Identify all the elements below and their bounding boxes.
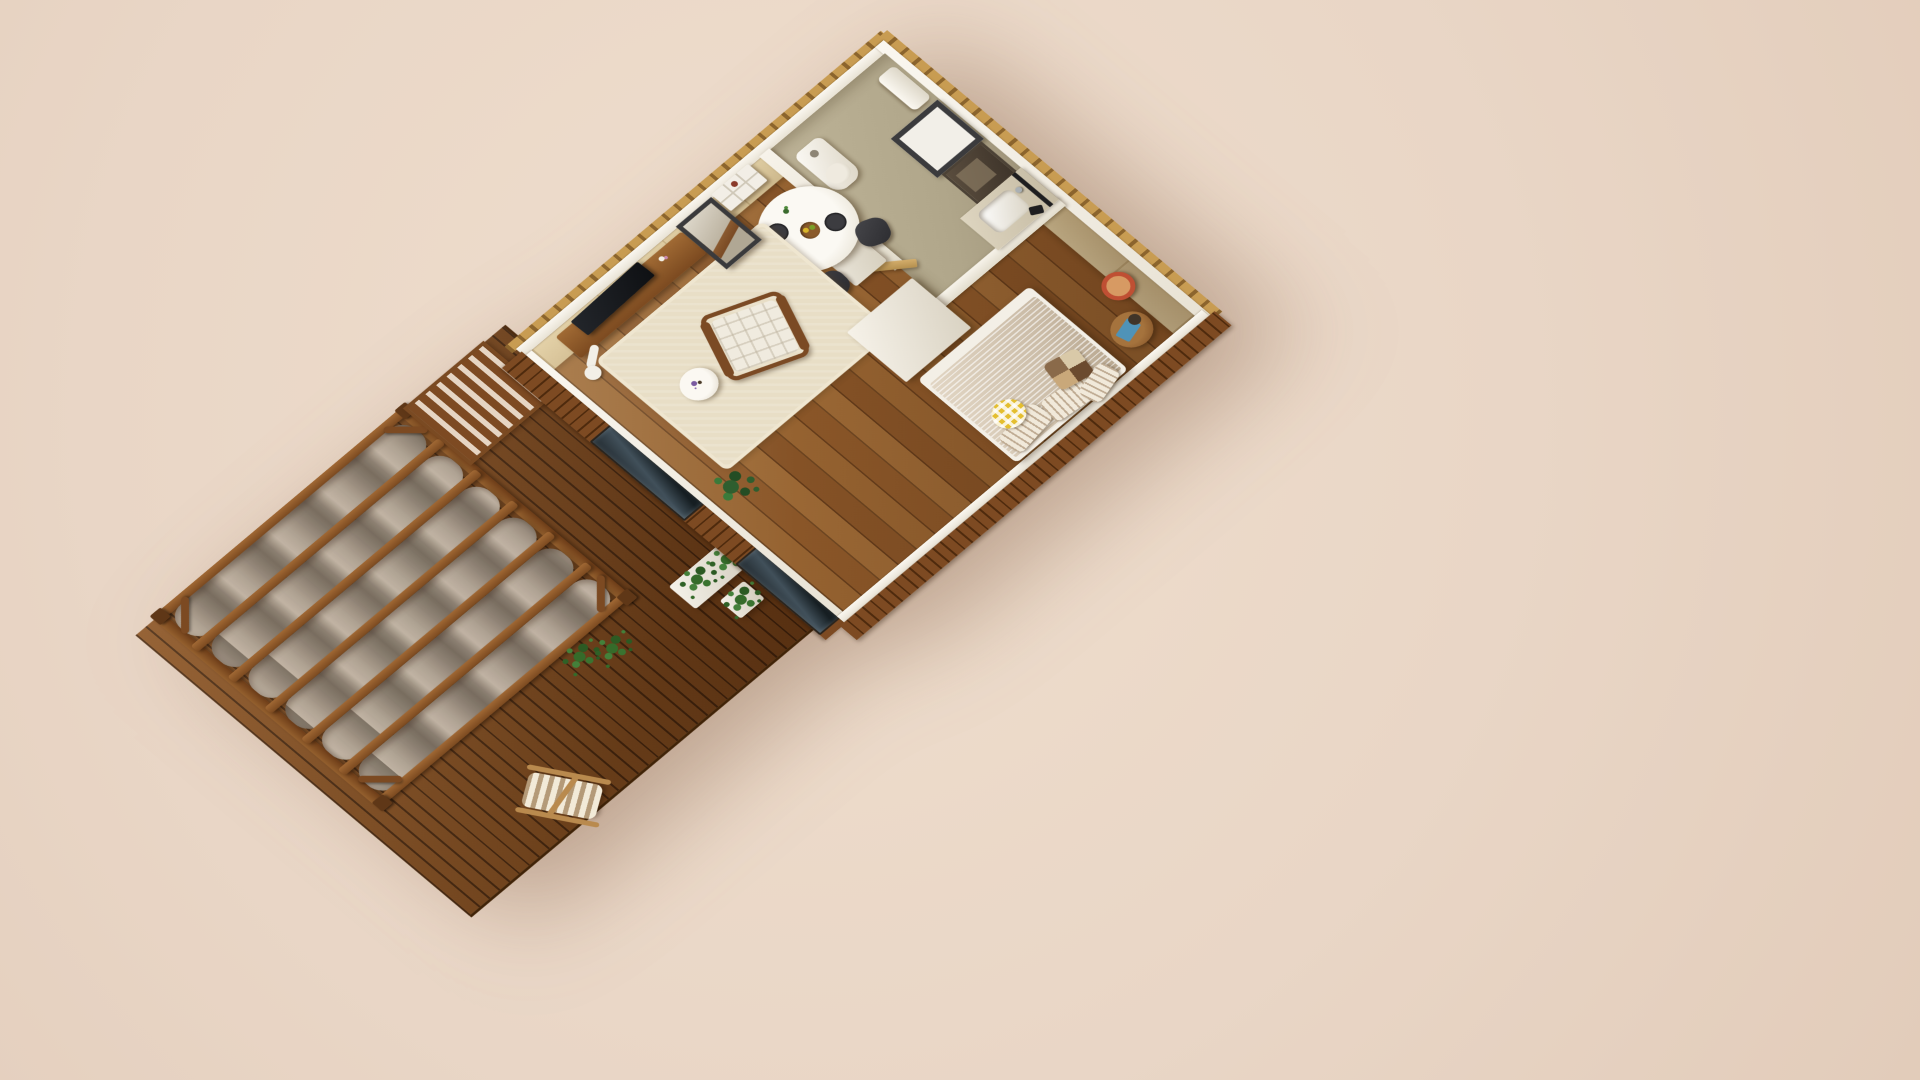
- render-canvas: [0, 0, 1920, 1080]
- corner-brace: [597, 575, 605, 612]
- toilet-seat: [821, 158, 856, 188]
- corner-brace: [358, 776, 402, 783]
- corner-brace: [181, 597, 189, 634]
- isometric-scene: [107, 0, 1253, 956]
- corner-brace: [384, 426, 428, 433]
- niche-shelf: [956, 158, 997, 192]
- flush-button: [808, 148, 821, 159]
